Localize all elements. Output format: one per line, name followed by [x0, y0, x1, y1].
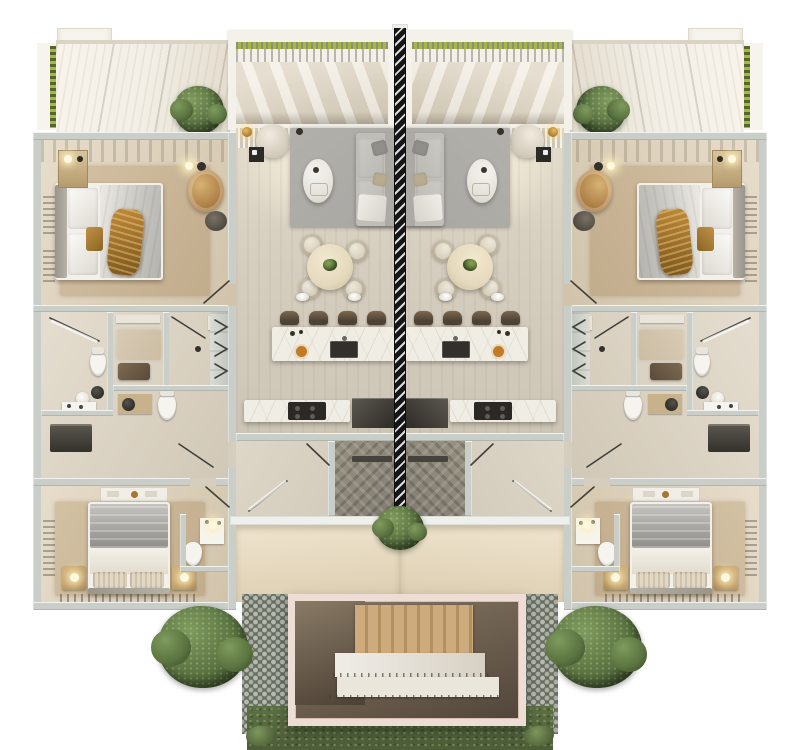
floorplan-render [0, 0, 800, 750]
tree [158, 606, 248, 688]
entry-stair-enclosure [288, 594, 526, 726]
party-wall-hatched [394, 28, 406, 520]
stair-lower-flight [337, 677, 499, 697]
tree [552, 606, 642, 688]
stair-upper-flight [355, 605, 473, 653]
center-planter [376, 506, 424, 550]
stair-railing [329, 695, 501, 699]
